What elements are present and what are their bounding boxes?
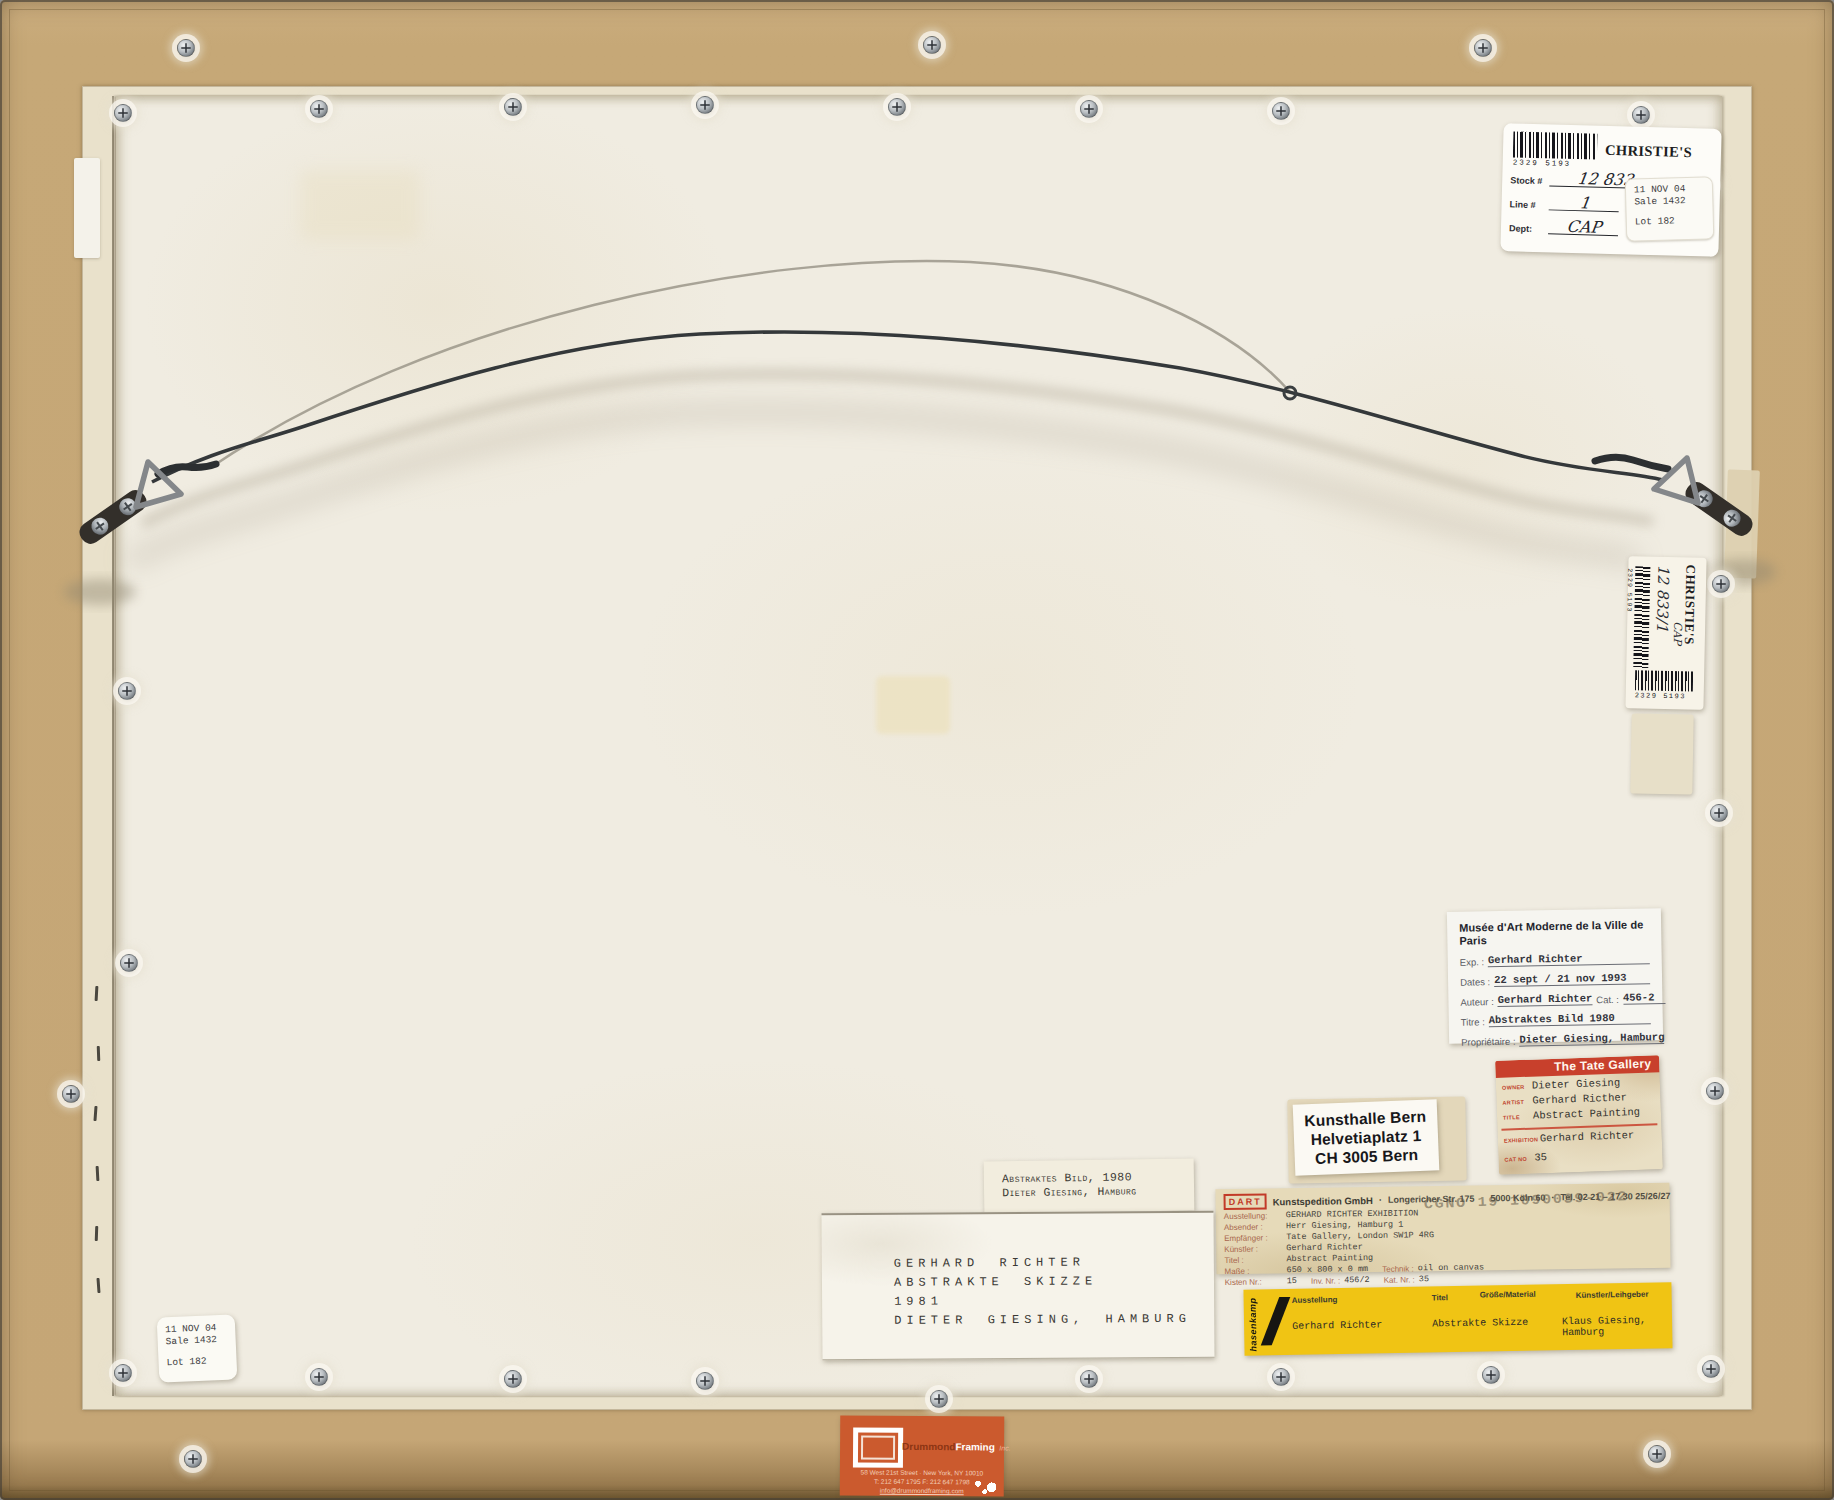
christies-brand: CHRISTIE'S <box>1605 142 1692 161</box>
blank-sticker <box>1630 713 1693 794</box>
kunsthalle-line3: CH 3005 Bern <box>1300 1144 1433 1168</box>
proprietaire-label: Propriétaire : <box>1461 1036 1516 1048</box>
dept-label: Dept: <box>1509 223 1549 234</box>
sale-number: Sale 1432 <box>165 1333 235 1348</box>
catno-value: 35 <box>1534 1151 1547 1163</box>
typed-title-large-label: GERHARD RICHTER ABSTRAKTE SKIZZE 1981 DI… <box>821 1211 1214 1361</box>
titre-label: Titre : <box>1461 1016 1485 1027</box>
separator-dot: · <box>1379 1195 1382 1205</box>
stock-value-handwritten: 12 833/1 <box>1653 565 1672 632</box>
screw-icon <box>696 96 714 114</box>
catno-row: CAT NO 35 <box>1498 1147 1662 1165</box>
exhibition-label: EXHIBITION <box>1504 1137 1534 1144</box>
artist-line: GERHARD RICHTER <box>894 1253 1214 1274</box>
line-label: Line # <box>1509 199 1549 210</box>
cat-label: Cat. : <box>1596 994 1619 1005</box>
inv-label: Inv. Nr. : <box>1311 1276 1340 1286</box>
cat-value: 456-2 <box>1623 991 1665 1005</box>
dart-shipping-label: DART Kunstspedition GmbH · Longericher S… <box>1215 1183 1670 1274</box>
kuenstler-label: Künstler : <box>1224 1244 1286 1254</box>
leihgeber-column: Künstler/Leihgeber Klaus Giesing, Hambur… <box>1562 1290 1650 1339</box>
title-line: ABSTRAKTE SKIZZE <box>894 1272 1214 1293</box>
artist-label: ARTIST <box>1502 1099 1532 1106</box>
groesse-column: Größe/Material <box>1480 1290 1536 1300</box>
framed-artwork-back-photo: 2329 5193 CHRISTIE'S Stock # 12 833 Line… <box>0 0 1834 1500</box>
screw-icon <box>504 1370 522 1388</box>
christies-brand-vertical: CHRISTIE'S <box>1681 564 1699 645</box>
kunsthalle-label: Kunsthalle Bern Helvetiaplatz 1 CH 3005 … <box>1293 1099 1440 1175</box>
barcode-digits: 2329 5193 <box>1635 691 1693 700</box>
screw-icon <box>184 1450 202 1468</box>
screw-icon <box>114 104 132 122</box>
line-value-handwritten: 1 <box>1549 194 1621 212</box>
screw-icon <box>310 100 328 118</box>
barcode-bars <box>1513 131 1598 159</box>
framer-name-part3: Inc. <box>999 1445 1010 1452</box>
exhibition-value: Gerhard Richter <box>1540 1129 1635 1144</box>
ausstellung-label: Ausstellung: <box>1224 1211 1286 1221</box>
absender-label: Absender : <box>1224 1222 1286 1232</box>
auteur-value: Gerhard Richter <box>1498 992 1593 1007</box>
titre-row: Titre : Abstraktes Bild 1980 <box>1461 1011 1651 1027</box>
owner-value: Dieter Giesing <box>1532 1077 1621 1092</box>
tate-gallery-label: The Tate Gallery OWNER Dieter Giesing AR… <box>1495 1055 1663 1175</box>
kisten-label: Kisten Nr.: <box>1225 1277 1287 1287</box>
hasenkamp-logo: hasenkamp <box>1248 1293 1259 1351</box>
exp-label: Exp. : <box>1460 956 1484 967</box>
dart-company: Kunstspedition GmbH <box>1273 1194 1373 1206</box>
musee-label: Musée d'Art Moderne de la Ville de Paris… <box>1447 908 1663 1044</box>
kat-label: Kat. Nr. : <box>1384 1275 1415 1285</box>
christies-stock-label: 2329 5193 CHRISTIE'S Stock # 12 833 Line… <box>1500 123 1721 257</box>
screw-icon <box>504 98 522 116</box>
hasenkamp-label: hasenkamp Ausstellung Gerhard Richter Ti… <box>1243 1282 1672 1355</box>
screw-icon <box>120 954 138 972</box>
framer-name-part1: Drummond <box>902 1441 955 1452</box>
screw-icon <box>923 36 941 54</box>
screw-icon <box>62 1085 80 1103</box>
screw-icon <box>177 39 195 57</box>
dates-row: Dates : 22 sept / 21 nov 1993 <box>1460 971 1650 987</box>
screw-icon <box>1712 575 1730 593</box>
screw-icon <box>1482 1366 1500 1384</box>
kisten-value: 15 <box>1287 1277 1297 1287</box>
titel-value: Abstrakte Skizze <box>1432 1317 1528 1330</box>
dept-row: Dept: CAP <box>1509 217 1619 236</box>
leihgeber-value: Klaus Giesing, Hamburg <box>1562 1315 1649 1339</box>
screw-icon <box>114 1364 132 1382</box>
frame-icon <box>853 1428 903 1468</box>
dates-label: Dates : <box>1460 976 1490 988</box>
leihgeber-header: Künstler/Leihgeber <box>1562 1290 1649 1301</box>
screw-icon <box>1648 1445 1666 1463</box>
screw-icon <box>1272 102 1290 120</box>
titre-value: Abstraktes Bild 1980 <box>1489 1011 1651 1027</box>
exp-value: Gerhard Richter <box>1488 951 1650 967</box>
screw-icon <box>1710 804 1728 822</box>
screw-icon <box>1272 1368 1290 1386</box>
dart-logo: DART <box>1223 1193 1266 1210</box>
owner-line: Dieter Giesing, Hamburg <box>1002 1184 1194 1201</box>
screw-icon <box>1080 100 1098 118</box>
lot-sticker: 11 NOV 04 Sale 1432 Lot 182 <box>157 1314 238 1382</box>
inv-value: 456/2 <box>1344 1276 1370 1286</box>
ausstellung-value: GERHARD RICHTER EXHIBITION <box>1286 1209 1419 1220</box>
christies-side-label: 2329 5193 12 833/1 CAP CHRISTIE'S 2329 5… <box>1625 556 1706 710</box>
artist-value: Gerhard Ricther <box>1532 1091 1627 1106</box>
titel-value: Abstract Painting <box>1286 1253 1373 1264</box>
title-value: Abstract Painting <box>1533 1106 1640 1122</box>
absender-value: Herr Giesing, Hamburg 1 <box>1286 1220 1403 1231</box>
screw-icon <box>930 1390 948 1408</box>
exhibition-row: EXHIBITION Gerhard Richter <box>1498 1128 1662 1146</box>
proprietaire-value: Dieter Giesing, Hamburg <box>1519 1031 1664 1047</box>
empfaenger-value: Tate Gallery, London SW1P 4RG <box>1286 1231 1434 1243</box>
auteur-row: Auteur : Gerhard Richter Cat. : 456-2 <box>1460 991 1650 1007</box>
masse-value: 650 x 800 x 0 mm <box>1287 1265 1369 1276</box>
catno-label: CAT NO <box>1504 1156 1534 1163</box>
exp-row: Exp. : Gerhard Richter <box>1460 951 1650 967</box>
screw-icon <box>1706 1082 1724 1100</box>
framer-label: DrummondFraming Inc. 58 West 21st Street… <box>840 1415 1005 1496</box>
title-row: TITLE Abstract Painting <box>1497 1105 1661 1123</box>
barcode-bars-vertical <box>1633 566 1650 668</box>
kuenstler-value: Gerhard Richter <box>1286 1243 1363 1254</box>
ausstellung-column: Ausstellung Gerhard Richter <box>1292 1294 1383 1332</box>
framer-name: DrummondFraming Inc. <box>902 1436 1011 1455</box>
musee-title: Musée d'Art Moderne de la Ville de Paris <box>1459 918 1649 947</box>
lot-number: Lot 182 <box>166 1354 236 1369</box>
lot-number: Lot 182 <box>1635 214 1713 228</box>
sale-number: Sale 1432 <box>1634 194 1712 208</box>
year-line: 1981 <box>894 1291 1214 1312</box>
hasenkamp-flag-icon <box>1261 1297 1291 1346</box>
paint-splatter <box>968 1476 1002 1494</box>
barcode-digits-vertical: 2329 5193 <box>1625 568 1633 612</box>
empfaenger-label: Empfänger : <box>1224 1233 1286 1243</box>
screw-icon <box>1474 39 1492 57</box>
kat-value: 35 <box>1419 1275 1429 1285</box>
owner-line: DIETER GIESING, HAMBURG <box>894 1310 1214 1331</box>
barcode: 2329 5193 <box>1635 670 1694 700</box>
technik-label: Technik : <box>1382 1264 1414 1274</box>
barcode-bars <box>1635 670 1693 691</box>
screw-icon <box>1702 1360 1720 1378</box>
stock-label: Stock # <box>1510 175 1550 186</box>
ausstellung-header: Ausstellung <box>1292 1294 1382 1305</box>
typed-title-small-label: Abstraktes Bild, 1980 Dieter Giesing, Ha… <box>984 1159 1195 1214</box>
groesse-header: Größe/Material <box>1480 1290 1536 1300</box>
screw-icon <box>118 682 136 700</box>
framer-name-part2: Framing <box>955 1441 995 1452</box>
screw-icon <box>310 1368 328 1386</box>
titel-label: Titel : <box>1224 1255 1286 1265</box>
dept-value-handwritten: CAP <box>1548 218 1620 236</box>
masse-label: Maße : <box>1225 1266 1287 1276</box>
ausstellung-value: Gerhard Richter <box>1292 1319 1382 1332</box>
auteur-label: Auteur : <box>1460 996 1493 1008</box>
title-label: TITLE <box>1503 1114 1533 1121</box>
frame-icon-inner <box>861 1436 895 1460</box>
screw-icon <box>696 1372 714 1390</box>
owner-label: OWNER <box>1502 1084 1532 1091</box>
screw-icon <box>888 98 906 116</box>
sale-date-sticker: 11 NOV 04 Sale 1432 Lot 182 <box>1625 176 1715 241</box>
screw-icon <box>1632 106 1650 124</box>
screw-icon <box>1080 1370 1098 1388</box>
dates-value: 22 sept / 21 nov 1993 <box>1494 971 1650 987</box>
technik-value: oil on canvas <box>1418 1263 1484 1273</box>
line-row: Line # 1 <box>1509 193 1619 212</box>
